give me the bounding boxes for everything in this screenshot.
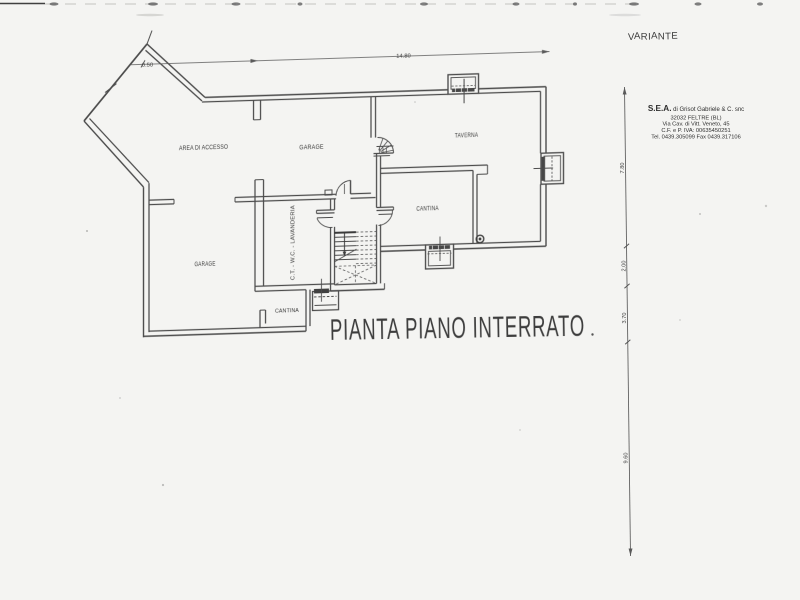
svg-text:0.50: 0.50 [142,63,153,69]
svg-text:VARIANTE: VARIANTE [628,30,678,43]
svg-text:GARAGE: GARAGE [194,261,215,268]
svg-text:32032 FELTRE (BL): 32032 FELTRE (BL) [670,116,721,122]
svg-text:7.80: 7.80 [620,163,626,174]
svg-text:14.80: 14.80 [396,54,410,60]
svg-text:9.60: 9.60 [624,453,630,464]
svg-text:Tel. 0439.305099 Fax 0439.3171: Tel. 0439.305099 Fax 0439.317106 [651,134,741,140]
svg-text:C.T. - W.C. - LAVANDERIA: C.T. - W.C. - LAVANDERIA [291,205,297,280]
svg-text:3.70: 3.70 [622,313,628,324]
svg-text:2.00: 2.00 [621,261,627,272]
svg-text:Via Cav. di Vitt. Veneto, 45: Via Cav. di Vitt. Veneto, 45 [662,122,729,128]
svg-text:CANTINA: CANTINA [416,206,439,213]
svg-text:TAVERNA: TAVERNA [455,132,478,139]
svg-text:PIANTA PIANO INTERRATO: PIANTA PIANO INTERRATO [330,311,586,348]
svg-text:GARAGE: GARAGE [299,144,323,151]
svg-text:CANTINA: CANTINA [275,308,299,315]
svg-text:C.F. e P. IVA: 00635450251: C.F. e P. IVA: 00635450251 [661,128,730,134]
